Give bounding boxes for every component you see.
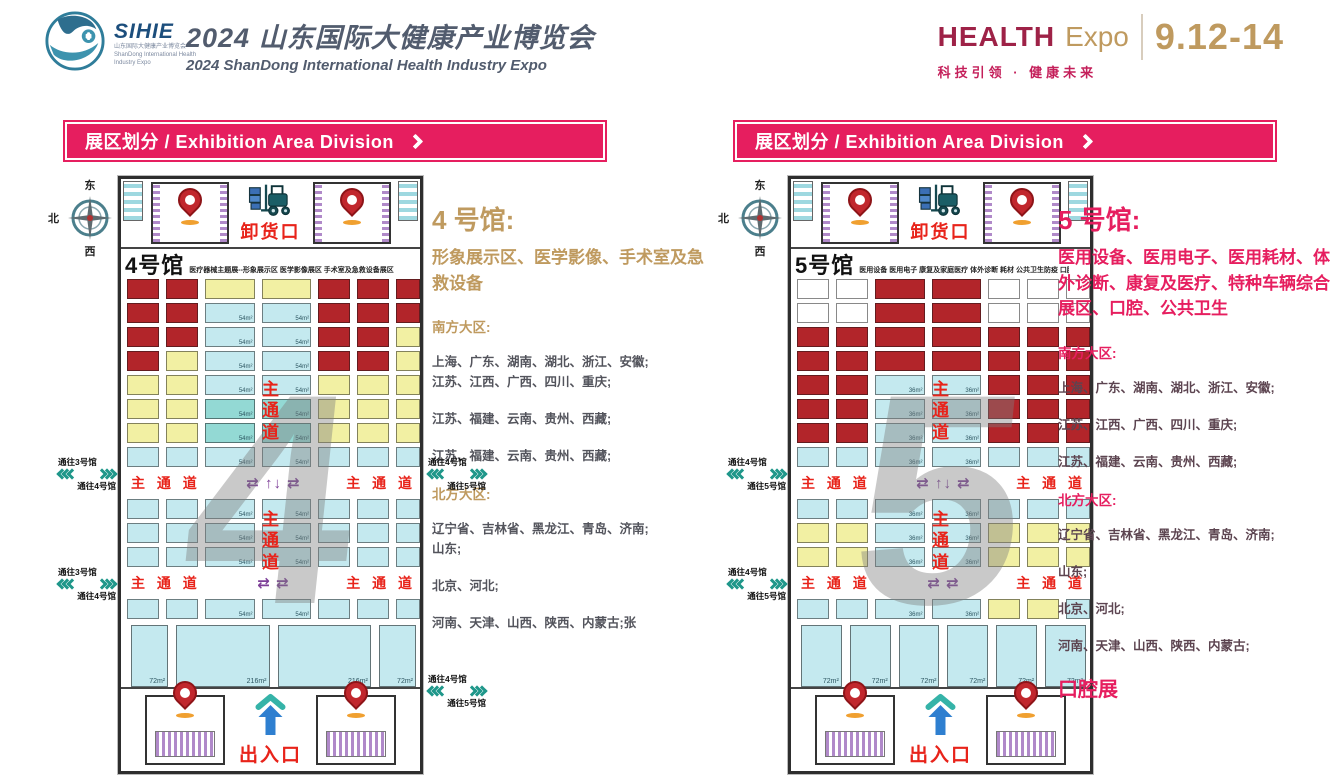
booth-cell — [988, 599, 1020, 619]
booth-cell — [396, 279, 420, 299]
restroom-structure — [151, 182, 229, 244]
booth-area-label: 36m² — [965, 412, 979, 418]
booth-cell — [318, 423, 350, 443]
pin-base-shape — [1017, 713, 1035, 718]
booth-cell — [988, 447, 1020, 467]
booth-cell — [127, 375, 159, 395]
compass-rose-icon: 东南西北 — [62, 190, 118, 246]
booth-cell — [836, 447, 868, 467]
booth-area-label: 54m² — [239, 460, 253, 466]
booth-cell — [836, 599, 868, 619]
main-aisle-vertical-label: 主通道 — [262, 379, 279, 443]
corridor-destination-label: 通往4号馆 — [428, 673, 486, 685]
region-provinces-text: 河南、天津、山西、陕西、内蒙古;张 — [432, 613, 710, 633]
corridor-destination-label: 通往4号馆 — [58, 590, 116, 602]
main-aisle-label: 主 通 道 — [346, 573, 416, 593]
booth-area-label: 36m² — [965, 388, 979, 394]
restroom-structure — [313, 182, 391, 244]
booth-cell — [396, 447, 420, 467]
booth-cell — [357, 351, 389, 371]
booth-cell — [1027, 303, 1059, 323]
region-provinces-text: 山东; — [1058, 562, 1334, 582]
expo-dates: 9.12-14 — [1155, 16, 1284, 58]
booth-area-label: 54m² — [295, 340, 309, 346]
poster-page: SIHIE 山东国际大健康产业博览会 ShanDong Internationa… — [0, 0, 1334, 781]
booth-cell — [797, 547, 829, 567]
booth-cell — [875, 279, 925, 299]
booth-cell: 54m² — [205, 375, 255, 395]
booth-area-label: 72m² — [969, 678, 985, 685]
main-aisle-label: 主 通 道 — [131, 473, 201, 493]
booth-cell — [127, 599, 159, 619]
hall-description-title: 5 号馆: — [1058, 200, 1334, 237]
dental-expo-label: 口腔展 — [1058, 673, 1334, 702]
booth-cell — [797, 279, 829, 299]
booth-cell — [127, 399, 159, 419]
corridor-chevrons-icon — [101, 580, 116, 588]
corridor-destination-label: 通往4号馆 — [58, 480, 116, 492]
booth-area-label: 36m² — [909, 512, 923, 518]
booth-cell — [875, 303, 925, 323]
corridor-chevrons-icon — [728, 470, 743, 478]
booth-cell — [357, 279, 389, 299]
south-region-label: 南方大区: — [432, 316, 710, 336]
hatch-strip — [825, 731, 885, 757]
booth-cell — [205, 279, 255, 299]
booth-cell — [396, 499, 420, 519]
booth-cell — [166, 375, 198, 395]
booth-area-label: 36m² — [965, 560, 979, 566]
hall4-description: 4 号馆:形象展示区、医学影像、手术室及急救设备南方大区:上海、广东、湖南、湖北… — [432, 200, 710, 650]
booth-cell — [396, 523, 420, 543]
booth-cell — [932, 303, 982, 323]
direction-arrows-icon: ⇄ ⇄ — [927, 574, 959, 592]
chevron-right-icon — [1078, 133, 1094, 149]
large-booth: 72m² — [801, 625, 842, 687]
booth-cell — [836, 279, 868, 299]
booth-area-label: 54m² — [239, 560, 253, 566]
region-provinces-text: 辽宁省、吉林省、黑龙江、青岛、济南;山东; — [432, 519, 710, 559]
booth-cell — [836, 499, 868, 519]
booth-cell — [396, 327, 420, 347]
booth-cell — [357, 327, 389, 347]
plan-bottom-band: 出入口 — [791, 687, 1090, 771]
booth-cell: 54m² — [262, 599, 312, 619]
booth-row: 54m²54m² — [127, 327, 420, 347]
booth-cell — [318, 279, 350, 299]
location-pin-icon — [1005, 183, 1039, 217]
booth-cell — [1027, 599, 1059, 619]
region-provinces-text: 辽宁省、吉林省、黑龙江、青岛、济南; — [1058, 525, 1334, 545]
booth-area-label: 36m² — [965, 460, 979, 466]
booth-row — [127, 279, 420, 299]
pin-base-shape — [846, 713, 864, 718]
booth-cell — [836, 423, 868, 443]
hatch-strip — [155, 731, 215, 757]
booth-cell — [127, 523, 159, 543]
region-provinces-text: 上海、广东、湖南、湖北、浙江、安徽;江苏、江西、广西、四川、重庆; — [432, 352, 710, 392]
booth-cell: 54m² — [205, 599, 255, 619]
booth-cell: 54m² — [205, 447, 255, 467]
booth-cell — [127, 499, 159, 519]
hatch-strip — [890, 184, 897, 242]
main-aisle-row: 主 通 道⇄ ↑↓ ⇄主 通 道 — [797, 471, 1090, 495]
entrance-structure — [145, 695, 225, 765]
corridor-destination-label: 通往3号馆 — [58, 456, 116, 468]
booth-cell — [1027, 523, 1059, 543]
booth-cell: 54m² — [205, 499, 255, 519]
booth-cell — [932, 351, 982, 371]
booth-cell — [797, 523, 829, 543]
booth-area-label: 216m² — [247, 678, 267, 685]
booth-cell — [357, 375, 389, 395]
stairs-icon — [398, 181, 418, 221]
compass-east-label: 东 — [85, 177, 96, 193]
booth-cell — [1027, 423, 1059, 443]
hall-label-row: 5号馆医用设备 医用电子 康复及家庭医疗 体外诊断 耗材 公共卫生防疫 口腔展 — [795, 251, 1093, 277]
large-booth: 216m² — [278, 625, 371, 687]
booth-cell: 36m² — [875, 599, 925, 619]
main-aisle-label: 主 通 道 — [346, 473, 416, 493]
booth-row: 54m²54m² — [127, 599, 420, 619]
booth-cell — [396, 599, 420, 619]
main-aisle-row: 主 通 道⇄ ⇄主 通 道 — [127, 571, 420, 595]
plan-bottom-band: 出入口 — [121, 687, 420, 771]
entrance-structure — [986, 695, 1066, 765]
booth-cell — [988, 423, 1020, 443]
plan-top-band: 卸货口 — [121, 179, 420, 249]
booth-area-label: 72m² — [921, 678, 937, 685]
booth-cell — [318, 351, 350, 371]
booth-area-label: 36m² — [965, 536, 979, 542]
booth-cell — [396, 399, 420, 419]
corridor-destination-label: 通往5号馆 — [728, 480, 786, 492]
hall-description-title: 4 号馆: — [432, 200, 710, 237]
corridor-chevrons-icon — [771, 580, 786, 588]
main-aisle-label: 主 通 道 — [131, 573, 201, 593]
large-booth: 72m² — [379, 625, 416, 687]
booth-cell — [357, 523, 389, 543]
booth-cell — [357, 423, 389, 443]
direction-arrows-icon: ⇄ ↑↓ ⇄ — [916, 474, 970, 492]
region-provinces-text: 江苏、福建、云南、贵州、西藏; — [1058, 452, 1334, 472]
booth-area-label: 54m² — [295, 536, 309, 542]
booth-cell — [797, 327, 829, 347]
entrance-arrow-icon — [920, 693, 960, 737]
corridor-destination-label: 通往4号馆 — [728, 456, 786, 468]
main-aisle-label: 主 通 道 — [801, 473, 871, 493]
booth-cell — [318, 547, 350, 567]
hatch-strip — [315, 184, 322, 242]
booth-area-label: 36m² — [965, 612, 979, 618]
booth-cell — [988, 375, 1020, 395]
booth-cell — [836, 303, 868, 323]
corridor-link: 通往4号馆通往5号馆 — [428, 673, 486, 709]
booth-area-label: 36m² — [909, 412, 923, 418]
booth-row — [797, 351, 1090, 371]
booth-cell: 54m² — [205, 523, 255, 543]
main-aisle-vertical-label: 主通道 — [262, 509, 279, 573]
booth-cell: 54m² — [205, 547, 255, 567]
compass-north-label: 北 — [718, 210, 729, 226]
stairs-icon — [793, 181, 813, 221]
corridor-chevrons-icon — [771, 470, 786, 478]
corridor-chevrons — [428, 687, 486, 695]
unloading-dock-label: 卸货口 — [911, 218, 971, 244]
booth-cell — [127, 303, 159, 323]
booth-cell — [166, 499, 198, 519]
booth-cell — [875, 327, 925, 347]
pin-base-shape — [1013, 220, 1031, 225]
entrance-exit: 出入口 — [909, 693, 972, 767]
restroom-structure — [983, 182, 1061, 244]
pin-base-shape — [176, 713, 194, 718]
hatch-strip — [823, 184, 830, 242]
region-provinces-text: 江苏、江西、广西、四川、重庆; — [1058, 415, 1334, 435]
hatch-strip — [985, 184, 992, 242]
hall-description-subtitle: 形象展示区、医学影像、手术室及急救设备 — [432, 245, 710, 296]
compass-west-label: 西 — [85, 243, 96, 259]
booth-area-label: 72m² — [397, 678, 413, 685]
booth-area-label: 54m² — [239, 388, 253, 394]
booth-cell — [166, 523, 198, 543]
hatch-strip — [382, 184, 389, 242]
corridor-destination-label: 通往5号馆 — [428, 697, 486, 709]
corridor-destination-label: 通往4号馆 — [428, 456, 486, 468]
booth-area-label: 36m² — [965, 436, 979, 442]
booth-area-label: 36m² — [909, 388, 923, 394]
booth-cell — [988, 327, 1020, 347]
booth-cell: 36m² — [875, 399, 925, 419]
direction-arrows-icon: ⇄ ⇄ — [257, 574, 289, 592]
section-bar-right: 展区划分 / Exhibition Area Division — [735, 122, 1275, 160]
booth-cell — [988, 351, 1020, 371]
region-provinces-text: 北京、河北; — [1058, 599, 1334, 619]
booth-cell: 54m² — [205, 303, 255, 323]
booth-area-label: 72m² — [149, 678, 165, 685]
booth-area-label: 54m² — [295, 612, 309, 618]
booth-area-label: 54m² — [239, 512, 253, 518]
booth-row — [797, 279, 1090, 299]
corridor-link: 通往3号馆通往4号馆 — [58, 566, 116, 602]
floorplan-4号馆: 卸货口4号馆医疗器械主题展--形象展示区 医学影像展区 手术室及急救设备展区54… — [118, 176, 423, 774]
corridor-chevrons — [428, 470, 486, 478]
entrance-structure — [316, 695, 396, 765]
location-pin-icon — [843, 183, 877, 217]
booth-cell: 36m² — [875, 375, 925, 395]
booth-cell — [836, 351, 868, 371]
forklift-icon — [918, 181, 964, 219]
booth-cell — [127, 423, 159, 443]
compass-east-label: 东 — [755, 177, 766, 193]
north-region-label: 北方大区: — [1058, 489, 1334, 509]
main-aisle-row: 主 通 道⇄ ⇄主 通 道 — [797, 571, 1090, 595]
booth-row — [797, 303, 1090, 323]
booth-cell: 36m² — [875, 447, 925, 467]
booth-cell — [166, 423, 198, 443]
booth-cell — [166, 599, 198, 619]
booth-cell — [797, 447, 829, 467]
booth-area-label: 36m² — [909, 436, 923, 442]
large-booth: 72m² — [899, 625, 940, 687]
booth-cell — [797, 423, 829, 443]
booth-cell — [836, 375, 868, 395]
corridor-chevrons — [728, 470, 786, 478]
corridor-destination-label: 通往3号馆 — [58, 566, 116, 578]
hatch-strip — [153, 184, 160, 242]
pin-base-shape — [851, 220, 869, 225]
booth-cell — [127, 327, 159, 347]
entrance-exit: 出入口 — [239, 693, 302, 767]
booth-row: 36m²36m² — [797, 447, 1090, 467]
corridor-chevrons-icon — [428, 687, 443, 695]
compass-rose-icon: 东南西北 — [732, 190, 788, 246]
section-bar-left: 展区划分 / Exhibition Area Division — [65, 122, 605, 160]
booth-area-label: 72m² — [823, 678, 839, 685]
expo-logo: SIHIE 山东国际大健康产业博览会 ShanDong Internationa… — [44, 10, 204, 72]
entrance-exit-label: 出入口 — [239, 740, 302, 767]
hatch-strip — [220, 184, 227, 242]
main-aisle-vertical-label: 主通道 — [932, 509, 949, 573]
booth-area-label: 36m² — [909, 460, 923, 466]
unloading-dock: 卸货口 — [911, 181, 971, 244]
booth-area-label: 54m² — [239, 364, 253, 370]
corridor-chevrons-icon — [428, 470, 443, 478]
hall-categories-label: 医疗器械主题展--形象展示区 医学影像展区 手术室及急救设备展区 — [189, 265, 394, 275]
booth-cell — [797, 303, 829, 323]
corridor-link: 通往4号馆通往5号馆 — [428, 456, 486, 492]
main-aisle-row: 主 通 道⇄ ↑↓ ⇄主 通 道 — [127, 471, 420, 495]
booth-cell — [988, 499, 1020, 519]
booth-cell — [166, 547, 198, 567]
booth-cell — [988, 523, 1020, 543]
booth-cell: 54m² — [205, 327, 255, 347]
booth-cell: 36m² — [875, 499, 925, 519]
booth-cell — [396, 303, 420, 323]
large-booth: 72m² — [947, 625, 988, 687]
forklift-icon — [248, 181, 294, 219]
booth-cell — [932, 279, 982, 299]
booth-cell: 36m² — [875, 423, 925, 443]
booth-cell — [396, 375, 420, 395]
booth-cell — [318, 447, 350, 467]
booth-cell — [357, 547, 389, 567]
booth-cell: 54m² — [262, 327, 312, 347]
pin-base-shape — [181, 220, 199, 225]
booth-cell — [318, 523, 350, 543]
booth-cell — [396, 423, 420, 443]
chevron-right-icon — [408, 133, 424, 149]
stairs-icon — [123, 181, 143, 221]
entrance-arrow-icon — [250, 693, 290, 737]
entrance-exit-label: 出入口 — [909, 740, 972, 767]
booth-cell: 54m² — [205, 399, 255, 419]
main-aisle-vertical-label: 主通道 — [932, 379, 949, 443]
booth-cell: 54m² — [262, 447, 312, 467]
unloading-dock: 卸货口 — [241, 181, 301, 244]
region-provinces-text: 江苏、福建、云南、贵州、西藏; — [432, 409, 710, 429]
hatch-strip — [326, 731, 386, 757]
booth-cell — [357, 447, 389, 467]
corridor-link: 通往3号馆通往4号馆 — [58, 456, 116, 492]
section-bar-label: 展区划分 / Exhibition Area Division — [755, 128, 1064, 154]
hall4-floorplan-panel: 东南西北卸货口4号馆医疗器械主题展--形象展示区 医学影像展区 手术室及急救设备… — [60, 168, 490, 780]
plan-top-band: 卸货口 — [791, 179, 1090, 249]
brand-block: HEALTH Expo 9.12-14 科技引领 · 健康未来 — [938, 14, 1284, 81]
corridor-chevrons-icon — [58, 580, 73, 588]
booth-cell — [1027, 375, 1059, 395]
compass-north-label: 北 — [48, 210, 59, 226]
booth-cell: 54m² — [205, 351, 255, 371]
booth-area-label: 54m² — [239, 436, 253, 442]
booth-area-label: 54m² — [295, 316, 309, 322]
main-aisle-label: 主 通 道 — [801, 573, 871, 593]
brand-expo-label: Expo — [1065, 21, 1129, 53]
booth-cell — [836, 547, 868, 567]
large-booth: 72m² — [131, 625, 168, 687]
entrance-structure — [815, 695, 895, 765]
booth-area-label: 54m² — [295, 512, 309, 518]
location-pin-icon — [335, 183, 369, 217]
booth-cell — [166, 399, 198, 419]
corridor-chevrons-icon — [58, 470, 73, 478]
booth-area-label: 54m² — [239, 612, 253, 618]
booth-cell — [127, 447, 159, 467]
large-booth: 72m² — [850, 625, 891, 687]
pin-base-shape — [347, 713, 365, 718]
booth-area-label: 36m² — [909, 536, 923, 542]
booth-cell — [262, 279, 312, 299]
globe-logo-icon — [44, 10, 106, 72]
booth-cell — [1027, 499, 1059, 519]
booth-cell — [166, 351, 198, 371]
booth-cell — [318, 303, 350, 323]
corridor-destination-label: 通往4号馆 — [728, 566, 786, 578]
corridor-chevrons — [58, 580, 116, 588]
corridor-destination-label: 通往5号馆 — [728, 590, 786, 602]
brand-health-label: HEALTH — [938, 21, 1055, 53]
direction-arrows-icon: ⇄ ↑↓ ⇄ — [246, 474, 300, 492]
booth-cell — [318, 327, 350, 347]
booth-area-label: 54m² — [295, 460, 309, 466]
booth-row: 54m²54m² — [127, 351, 420, 371]
booth-cell — [1027, 447, 1059, 467]
booth-cell — [797, 499, 829, 519]
booth-cell — [357, 303, 389, 323]
compass-west-label: 西 — [755, 243, 766, 259]
booth-cell — [166, 279, 198, 299]
booth-row: 54m²54m² — [127, 447, 420, 467]
booth-cell — [166, 447, 198, 467]
booth-area-label: 54m² — [239, 340, 253, 346]
booth-cell — [166, 327, 198, 347]
booth-cell — [318, 599, 350, 619]
booth-cell — [988, 547, 1020, 567]
booth-cell — [166, 303, 198, 323]
corridor-chevrons-icon — [471, 470, 486, 478]
hall-label-row: 4号馆医疗器械主题展--形象展示区 医学影像展区 手术室及急救设备展区 — [125, 251, 423, 277]
booth-cell: 36m² — [875, 547, 925, 567]
booth-cell: 36m² — [932, 599, 982, 619]
booth-cell — [1027, 399, 1059, 419]
corridor-link: 通往4号馆通往5号馆 — [728, 566, 786, 602]
booth-cell — [357, 599, 389, 619]
booth-cell: 54m² — [262, 351, 312, 371]
location-pin-icon — [173, 183, 207, 217]
corridor-destination-label: 通往5号馆 — [428, 480, 486, 492]
booth-cell — [836, 399, 868, 419]
hall-name-label: 4号馆 — [125, 255, 184, 277]
